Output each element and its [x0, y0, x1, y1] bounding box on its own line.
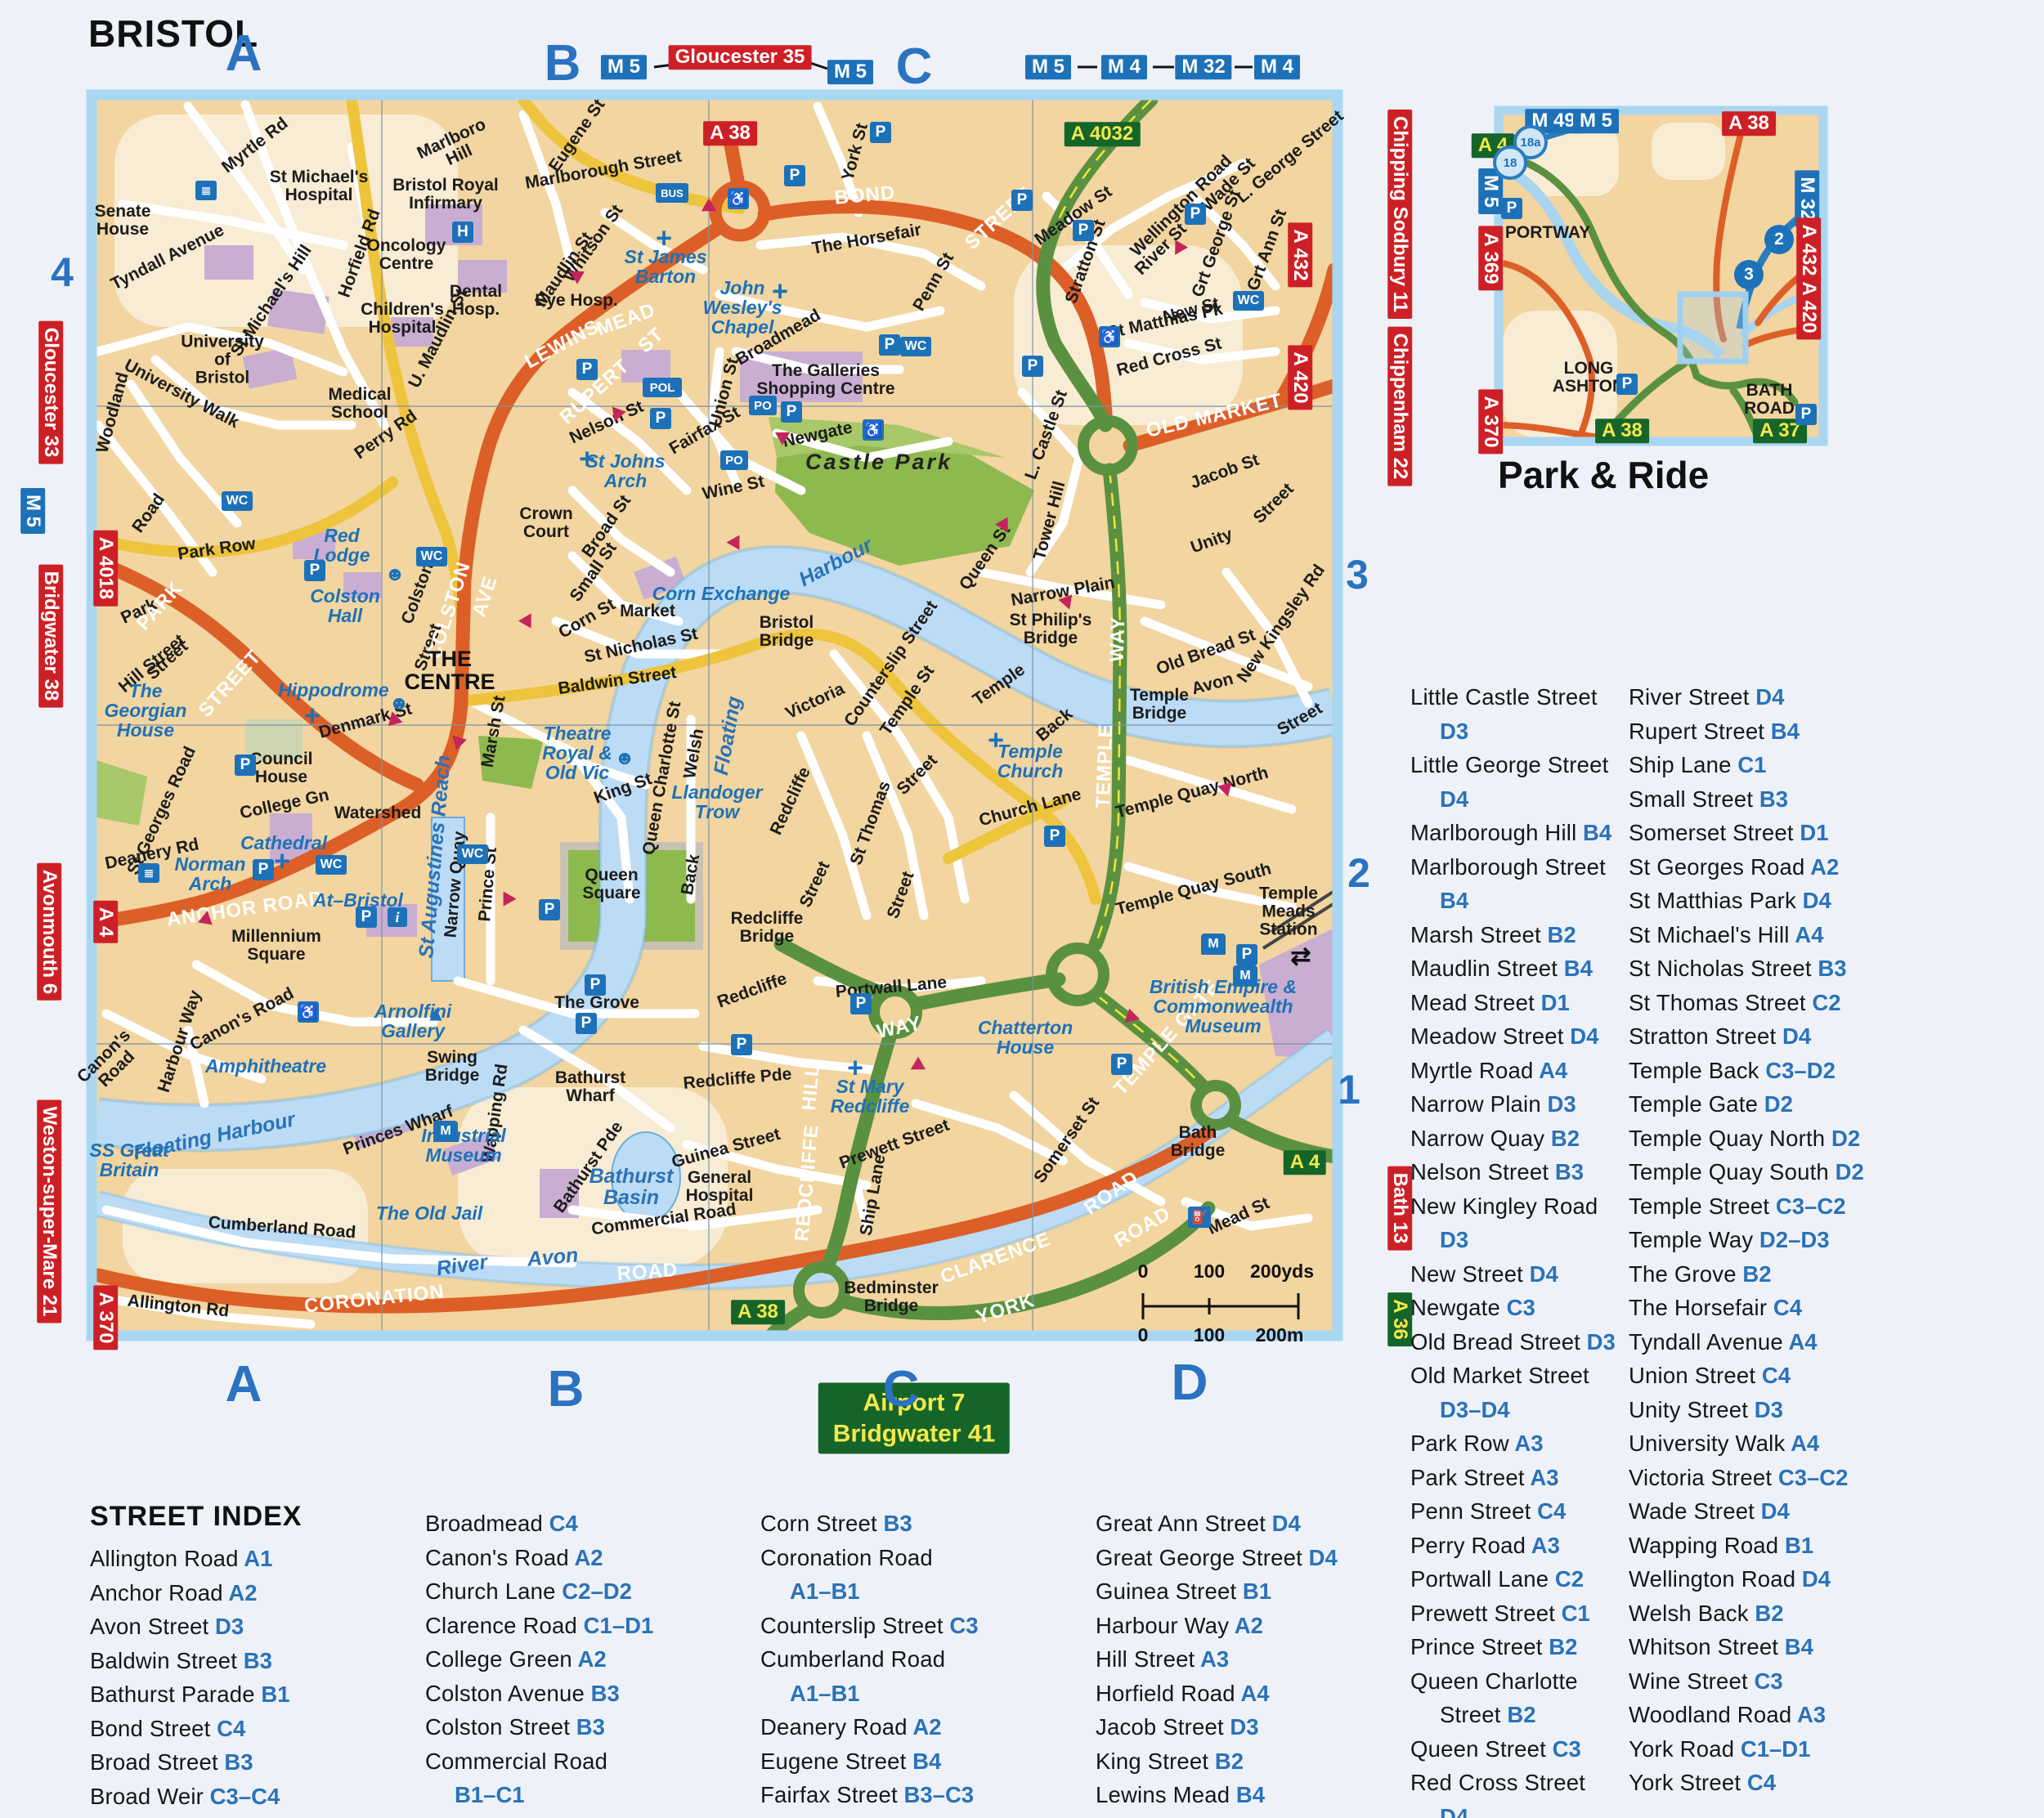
map-label: RedcliffeBridge	[731, 910, 804, 946]
index-entry: Rupert Street B4	[1629, 714, 1874, 749]
grid-ref: C2	[1806, 990, 1841, 1015]
street-name: Queen Charlotte	[1410, 1668, 1578, 1694]
grid-ref: B4	[1440, 888, 1468, 913]
toilets-icon: WC	[900, 337, 931, 356]
grid-ref: B2	[1543, 1634, 1578, 1659]
parking-icon: P	[1185, 204, 1206, 225]
grid-ref: B4	[1558, 956, 1593, 981]
map-label: Bristol RoyalInfirmary	[392, 177, 499, 213]
index-entry: St Nicholas Street B3	[1629, 952, 1874, 986]
map-label: TempleBridge	[1130, 687, 1189, 723]
map-label: BathBridge	[1171, 1124, 1226, 1160]
index-col-4: Great Ann Street D4Great George Street D…	[1096, 1507, 1419, 1812]
map-label: Castle Park	[805, 450, 953, 473]
route-sign: M 5	[1573, 109, 1619, 133]
street-name: Maudlin Street	[1410, 956, 1558, 981]
church-cross-icon: +	[579, 444, 595, 476]
grid-ref: D4	[1755, 1498, 1790, 1524]
route-sign: A 4	[93, 901, 118, 943]
street-name: Wade Street	[1629, 1498, 1755, 1524]
street-name: Somerset Street	[1629, 820, 1794, 845]
street-name: Harbour Way	[1096, 1613, 1229, 1638]
grid-ref: A3	[1525, 1465, 1559, 1490]
index-side-col-2: River Street D4Rupert Street B4Ship Lane…	[1629, 680, 1874, 1800]
parking-icon: P	[304, 560, 325, 581]
grid-ref: D3	[1541, 1091, 1576, 1117]
street-name: Portwall Lane	[1410, 1566, 1549, 1592]
grid-ref: A4	[1783, 1329, 1818, 1355]
map-label: SwingBridge	[425, 1049, 480, 1085]
street-name: The Grove	[1629, 1261, 1737, 1287]
grid-reference: C	[883, 1363, 920, 1416]
street-name: Broad Weir	[90, 1784, 204, 1809]
grid-ref: D4	[1776, 1023, 1811, 1049]
street-name: New Kingley Road	[1410, 1193, 1598, 1219]
inset-title: Park & Ride	[1498, 453, 1709, 497]
grid-ref: C4	[1741, 1770, 1776, 1795]
index-entry: Welsh Back B2	[1629, 1596, 1874, 1631]
map-label: NormanArch	[175, 855, 246, 894]
grid-ref: D2	[1758, 1091, 1793, 1117]
index-entry: Wade Street D4	[1629, 1494, 1874, 1529]
index-entry: Lewins Mead B4	[1096, 1778, 1419, 1812]
grid-ref: C4	[1755, 1363, 1791, 1388]
street-name: Old Market Street	[1410, 1363, 1589, 1388]
index-entry: Union Street C4	[1629, 1359, 1874, 1393]
street-name: Welsh Back	[1629, 1601, 1749, 1626]
railway-station-icon: ⇄	[1290, 943, 1311, 971]
index-entry: Whitson Street B4	[1629, 1630, 1874, 1664]
index-entry: Prewett Street C1	[1410, 1596, 1619, 1631]
one-way-arrow-icon	[198, 910, 215, 925]
parking-icon: P	[1236, 944, 1257, 965]
index-entry: Myrtle Road A4	[1410, 1054, 1619, 1088]
route-sign: M 4	[1254, 55, 1300, 79]
toilets-icon: WC	[416, 547, 447, 566]
street-name: Newgate	[1410, 1295, 1500, 1320]
grid-reference: A	[226, 1359, 262, 1411]
street-name: Commercial Road	[425, 1749, 607, 1774]
grid-ref: D4	[1440, 1804, 1468, 1818]
grid-ref: D4	[1440, 786, 1468, 812]
grid-reference: B	[548, 1363, 585, 1416]
index-entry: Penn Street C4	[1410, 1494, 1619, 1529]
map-label: MedicalSchool	[328, 386, 391, 422]
index-entry: Maudlin Street B4	[1410, 952, 1619, 986]
map-label: Eye Hosp.	[535, 292, 618, 310]
grid-ref: A2	[572, 1646, 607, 1672]
grid-ref: D4	[1796, 888, 1831, 913]
street-name: Temple Way	[1629, 1227, 1753, 1252]
grid-ref: D3–D4	[1440, 1397, 1510, 1422]
route-sign: M 5	[20, 488, 45, 534]
index-entry: Marlborough Street B4	[1410, 850, 1619, 918]
index-entry: Stratton Street D4	[1629, 1019, 1874, 1054]
street-name: King Street	[1096, 1749, 1208, 1774]
grid-ref: C3	[1748, 1668, 1783, 1694]
map-label: ColstonHall	[310, 587, 380, 626]
route-sign: A 420	[1288, 345, 1312, 410]
route-sign: A 432	[1796, 217, 1821, 282]
route-sign: Chippenham 22	[1387, 327, 1412, 486]
map-label: St Michael'sHospital	[270, 168, 369, 204]
police-icon: POL	[643, 378, 682, 397]
index-entry: Temple Quay South D2	[1629, 1155, 1874, 1189]
route-sign: M 5	[1025, 55, 1071, 79]
street-name: Fairfax Street	[760, 1782, 898, 1807]
post-office-icon: PO	[749, 396, 777, 415]
index-entry: New Kingley Road D3	[1410, 1189, 1619, 1257]
gallery-marker-icon: ▲	[425, 1001, 446, 1027]
street-name: Bathurst Parade	[90, 1681, 255, 1707]
grid-reference: A	[226, 28, 262, 80]
grid-ref: C1	[1555, 1601, 1590, 1626]
index-entry: Corn Street B3	[760, 1507, 1083, 1541]
map-label: UniversityofBristol	[181, 333, 264, 386]
map-label: TheGeorgianHouse	[105, 682, 187, 741]
street-name: Ship Lane	[1629, 752, 1732, 777]
index-entry: Marlborough Hill B4	[1410, 816, 1619, 850]
grid-ref: A2	[908, 1714, 942, 1740]
street-name: St Thomas Street	[1629, 990, 1806, 1015]
grid-ref: B4	[1764, 719, 1800, 744]
grid-ref: D4	[1523, 1261, 1558, 1287]
map-label: 0	[1138, 1326, 1149, 1346]
map-label: St Philip'sBridge	[1010, 611, 1092, 647]
grid-ref: D3	[208, 1614, 244, 1639]
church-cross-icon: +	[847, 1053, 863, 1085]
grid-ref: C2	[1549, 1566, 1584, 1592]
map-label: Hippodrome	[278, 681, 388, 701]
map-label: HILL	[800, 1063, 824, 1111]
index-entry: Guinea Street B1	[1096, 1574, 1419, 1609]
grid-ref: C1–D1	[577, 1613, 653, 1638]
map-label: 100	[1194, 1326, 1225, 1346]
index-entry: Counterslip Street C3	[760, 1609, 1083, 1643]
street-name: Avon Street	[90, 1614, 208, 1639]
street-name: Penn Street	[1410, 1498, 1531, 1524]
street-name: Temple Back	[1629, 1058, 1759, 1083]
route-sign: A 432	[1288, 222, 1312, 287]
grid-ref: C1	[1732, 752, 1767, 777]
street-name: Unity Street	[1629, 1397, 1748, 1422]
grid-ref: B3	[218, 1749, 253, 1775]
index-entry: Meadow Street D4	[1410, 1019, 1619, 1054]
index-entry: Broad Street B3	[90, 1745, 413, 1780]
grid-ref: C3–C2	[1772, 1465, 1848, 1490]
toilets-icon: WC	[1233, 291, 1264, 311]
map-label: St JohnsArch	[585, 452, 665, 491]
grid-ref: A4	[1790, 922, 1824, 947]
street-name: River Street	[1629, 684, 1750, 710]
street-name: Park Row	[1410, 1431, 1509, 1456]
street-name: Little George Street	[1410, 752, 1608, 777]
index-entry: Little George Street D4	[1410, 748, 1619, 816]
street-name: Temple Gate	[1629, 1091, 1758, 1117]
bus-station-icon: BUS	[656, 183, 688, 203]
street-name: York Road	[1629, 1736, 1734, 1762]
street-name: Narrow Quay	[1410, 1126, 1544, 1151]
route-sign: A 38	[703, 121, 757, 146]
route-sign: M 5	[601, 55, 647, 79]
grid-ref: A4	[1235, 1681, 1270, 1706]
parking-icon: P	[539, 899, 560, 920]
street-name: St Georges Road	[1629, 854, 1804, 880]
index-entry: River Street D4	[1629, 680, 1874, 714]
street-name: Temple Quay North	[1629, 1126, 1825, 1151]
parking-icon: P	[1022, 356, 1043, 377]
museum-icon: M	[1201, 934, 1226, 955]
street-name: Cumberland Road	[760, 1646, 945, 1672]
grid-ref: B3	[1753, 786, 1788, 812]
street-name: St Michael's Hill	[1629, 922, 1790, 947]
street-name: Rupert Street	[1629, 719, 1764, 744]
street-name: Temple Street	[1629, 1193, 1769, 1219]
map-label: The Grove	[554, 994, 639, 1012]
map-label: 200yds	[1250, 1262, 1314, 1282]
grid-reference: B	[545, 38, 581, 90]
index-entry: Jacob Street D3	[1096, 1710, 1419, 1744]
route-sign: A 38	[731, 1300, 785, 1324]
street-name: Marlborough Hill	[1410, 820, 1576, 845]
index-entry: Queen Street C3	[1410, 1732, 1619, 1767]
route-sign: Bath 13	[1387, 1166, 1412, 1251]
map-label: LONGASHTON	[1553, 360, 1625, 396]
index-entry: Prince Street B2	[1410, 1630, 1619, 1664]
index-entry: Avon Street D3	[90, 1610, 413, 1644]
map-label: Amphitheatre	[205, 1057, 326, 1077]
street-name: Marsh Street	[1410, 922, 1541, 947]
street-name: The Horsefair	[1629, 1295, 1767, 1320]
index-entry: Church Lane C2–D2	[425, 1574, 748, 1609]
index-entry: St Matthias Park D4	[1629, 884, 1874, 918]
index-entry: Small Street B3	[1629, 782, 1874, 817]
route-sign: A 4	[1284, 1150, 1326, 1175]
index-entry: Temple Street C3–C2	[1629, 1189, 1874, 1224]
map-label: 100	[1194, 1262, 1225, 1282]
map-label: Watershed	[334, 804, 422, 822]
parking-icon: P	[784, 165, 805, 186]
index-entry: St Michael's Hill A4	[1629, 918, 1874, 952]
street-name: Coronation Road	[760, 1545, 933, 1570]
grid-ref: C3	[1546, 1736, 1581, 1762]
street-name: Nelson Street	[1410, 1159, 1549, 1184]
index-entry: Wapping Road B1	[1629, 1529, 1874, 1563]
index-entry: College Green A2	[425, 1642, 748, 1677]
index-entry: St Georges Road A2	[1629, 850, 1874, 884]
map-label: 0	[1138, 1262, 1149, 1282]
street-name: Old Bread Street	[1410, 1329, 1580, 1355]
street-name: Counterslip Street	[760, 1613, 944, 1638]
index-entry: Allington Road A1	[90, 1542, 413, 1576]
street-name: Mead Street	[1410, 990, 1535, 1015]
post-office-icon: PO	[720, 450, 748, 470]
grid-ref: C4	[210, 1716, 245, 1741]
grid-ref: A1–B1	[790, 1578, 860, 1604]
grid-ref: C3–C4	[204, 1784, 280, 1809]
street-name: St Matthias Park	[1629, 888, 1796, 913]
grid-reference: D	[1172, 1357, 1208, 1409]
map-label: WAY	[1108, 616, 1130, 662]
grid-ref: D2	[1829, 1159, 1864, 1184]
street-name: Broadmead	[425, 1511, 543, 1536]
park-ride-stop-icon: 2	[1764, 225, 1794, 254]
route-sign: A 4032	[1065, 122, 1141, 146]
index-entry: York Street C4	[1629, 1766, 1874, 1800]
index-entry: Victoria Street C3–C2	[1629, 1461, 1874, 1495]
parking-icon: P	[731, 1034, 752, 1055]
grid-ref: A3	[1791, 1702, 1826, 1727]
map-label: Corn Exchange	[652, 584, 791, 604]
street-name: Meadow Street	[1410, 1023, 1564, 1049]
index-entry: Fairfax Street B3–C3	[760, 1778, 1083, 1812]
grid-ref: D4	[1750, 684, 1785, 710]
index-entry: The Horsefair C4	[1629, 1291, 1874, 1325]
route-sign: A 420	[1796, 275, 1821, 339]
church-cross-icon: +	[988, 725, 1004, 757]
index-entry: Canon's Road A2	[425, 1541, 748, 1575]
index-entry: Marsh Street B2	[1410, 918, 1619, 952]
street-name: Street	[1440, 1702, 1507, 1727]
index-entry: Bond Street C4	[90, 1712, 413, 1746]
street-name: Wellington Road	[1629, 1566, 1795, 1592]
grid-ref: B2	[1544, 1126, 1580, 1151]
grid-ref: B2	[1507, 1702, 1535, 1727]
grid-ref: B1	[1236, 1578, 1271, 1604]
map-label: SenateHouse	[95, 203, 151, 239]
grid-ref: B2	[1208, 1749, 1244, 1774]
grid-reference: 3	[1346, 553, 1369, 596]
index-entry: Narrow Plain D3	[1410, 1087, 1619, 1122]
grid-ref: D1	[1794, 820, 1829, 845]
grid-ref: B3	[877, 1511, 912, 1536]
grid-ref: C4	[1767, 1295, 1802, 1320]
toilets-icon: WC	[316, 855, 347, 875]
parking-icon: P	[1111, 1054, 1132, 1075]
index-entry: Temple Quay North D2	[1629, 1122, 1874, 1156]
street-name: Tyndall Avenue	[1629, 1329, 1783, 1355]
grid-ref: B3–C3	[898, 1782, 974, 1807]
index-entry: Commercial RoadB1–C1	[425, 1744, 748, 1812]
street-name: Prince Street	[1410, 1634, 1543, 1659]
one-way-arrow-icon	[726, 535, 739, 550]
index-entry: New Street D4	[1410, 1257, 1619, 1292]
map-label: SS GreatBritain	[89, 1141, 168, 1180]
grid-ref: A2	[223, 1580, 258, 1605]
street-name: Clarence Road	[425, 1613, 577, 1638]
index-entry: Temple Way D2–D3	[1629, 1223, 1874, 1257]
index-entry: Wine Street C3	[1629, 1664, 1874, 1699]
parking-icon: P	[253, 859, 274, 880]
information-icon: i	[388, 907, 407, 927]
index-entry: Anchor Road A2	[90, 1576, 413, 1610]
street-name: Bond Street	[90, 1716, 210, 1741]
route-sign: A 38	[1722, 111, 1776, 136]
index-entry: Broad Weir C3–C4	[90, 1780, 413, 1814]
index-col-1: Allington Road A1Anchor Road A2Avon Stre…	[90, 1542, 413, 1813]
parking-icon: P	[356, 907, 377, 928]
map-label: TEMPLE	[1094, 723, 1118, 808]
parking-icon: P	[1616, 374, 1638, 395]
map-label: ChattertonHouse	[978, 1019, 1073, 1058]
grid-ref: D3	[1440, 719, 1468, 744]
street-name: Jacob Street	[1096, 1714, 1224, 1740]
index-entry: Great George Street D4	[1096, 1541, 1419, 1575]
index-entry: Clarence Road C1–D1	[425, 1609, 748, 1643]
grid-ref: C3–D2	[1759, 1058, 1836, 1083]
index-entry: Horfield Road A4	[1096, 1677, 1419, 1711]
grid-ref: B1–C1	[455, 1782, 525, 1807]
hospital-icon: H	[452, 222, 473, 243]
map-label: Market	[620, 602, 675, 620]
grid-ref: D1	[1535, 990, 1570, 1015]
route-sign: Gloucester 33	[38, 321, 63, 464]
index-entry: Red Cross Street D4	[1410, 1766, 1619, 1818]
map-label: The GalleriesShopping Centre	[756, 362, 894, 398]
street-name: Narrow Plain	[1410, 1091, 1541, 1117]
map-label: PORTWAY	[1505, 224, 1590, 242]
index-entry: University Walk A4	[1629, 1426, 1874, 1461]
museum-icon: M	[1233, 965, 1257, 987]
grid-ref: A3	[1509, 1431, 1544, 1456]
grid-ref: D3	[1748, 1397, 1783, 1422]
grid-ref: B3	[1549, 1159, 1584, 1184]
church-cross-icon: +	[772, 276, 788, 308]
map-label: CrownCourt	[519, 505, 572, 541]
grid-ref: D3	[1580, 1329, 1616, 1355]
route-sign: Bridgwater 38	[38, 565, 63, 708]
index-entry: Colston Street B3	[425, 1710, 748, 1744]
street-name: College Green	[425, 1646, 572, 1672]
route-sign: Weston-super-Mare 21	[37, 1100, 61, 1323]
map-label: TempleChurch	[997, 742, 1064, 781]
grid-reference: 2	[1347, 852, 1370, 894]
index-entry: Ship Lane C1	[1629, 748, 1874, 782]
street-name: Union Street	[1629, 1363, 1755, 1388]
index-side-col-1: Little Castle Street D3Little George Str…	[1410, 680, 1619, 1818]
route-sign: A 370	[93, 1285, 118, 1350]
map-label: St MaryRedcliffe	[831, 1077, 910, 1117]
street-name: Whitson Street	[1629, 1634, 1778, 1659]
atlas-page: BRISTOL Park & Ride STREET INDEX Airport…	[0, 0, 2044, 1818]
grid-ref: A1–B1	[790, 1681, 860, 1706]
map-label: JohnWesley'sChapel	[702, 279, 782, 338]
grid-ref: C3	[944, 1613, 979, 1638]
index-entry: The Grove B2	[1629, 1257, 1874, 1292]
disabled-parking-icon: ♿	[728, 188, 749, 209]
parking-icon: P	[850, 993, 872, 1014]
grid-ref: D4	[1795, 1566, 1831, 1592]
parking-icon: P	[870, 122, 891, 143]
index-col-3: Corn Street B3Coronation RoadA1–B1Counte…	[760, 1507, 1083, 1812]
street-name: Broad Street	[90, 1749, 218, 1775]
grid-ref: D4	[1266, 1511, 1301, 1536]
grid-ref: B2	[1749, 1601, 1784, 1626]
index-entry: Tyndall Avenue A4	[1629, 1325, 1874, 1359]
street-name: Wapping Road	[1629, 1533, 1778, 1558]
street-name: Myrtle Road	[1410, 1058, 1533, 1083]
street-name: Eugene Street	[760, 1749, 906, 1774]
route-sign: Avonmouth 6	[37, 863, 61, 1001]
street-name: Little Castle Street	[1410, 684, 1598, 710]
motorway-junction-icon: 18	[1493, 146, 1527, 180]
parking-icon: P	[1011, 190, 1033, 211]
parking-icon: P	[781, 401, 802, 423]
index-entry: Perry Road A3	[1410, 1529, 1619, 1563]
grid-ref: A4	[1533, 1058, 1567, 1083]
toilets-icon: WC	[222, 491, 253, 511]
grid-ref: D2–D3	[1753, 1227, 1829, 1252]
